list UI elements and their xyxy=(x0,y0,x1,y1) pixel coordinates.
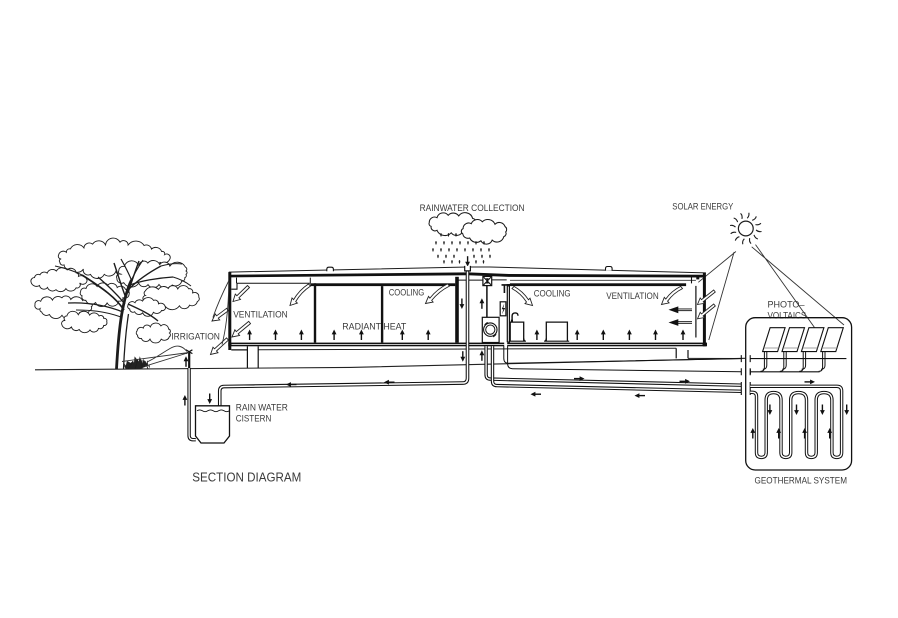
svg-text:PHOTO–: PHOTO– xyxy=(768,299,806,309)
svg-text:COOLING: COOLING xyxy=(389,288,425,298)
svg-text:SOLAR ENERGY: SOLAR ENERGY xyxy=(672,202,733,212)
svg-text:VENTILATION: VENTILATION xyxy=(606,291,659,301)
svg-text:VENTILATION: VENTILATION xyxy=(233,309,288,319)
svg-text:SECTION DIAGRAM: SECTION DIAGRAM xyxy=(192,470,301,485)
svg-text:COOLING: COOLING xyxy=(534,288,571,298)
svg-text:VOLTAICS: VOLTAICS xyxy=(768,310,807,320)
svg-text:RADIANT HEAT: RADIANT HEAT xyxy=(342,322,406,332)
svg-text:RAIN WATER: RAIN WATER xyxy=(236,403,288,413)
svg-text:CISTERN: CISTERN xyxy=(236,413,271,423)
svg-text:IRRIGATION: IRRIGATION xyxy=(171,332,220,342)
svg-text:RAINWATER COLLECTION: RAINWATER COLLECTION xyxy=(420,203,525,213)
svg-text:GEOTHERMAL SYSTEM: GEOTHERMAL SYSTEM xyxy=(755,476,848,486)
